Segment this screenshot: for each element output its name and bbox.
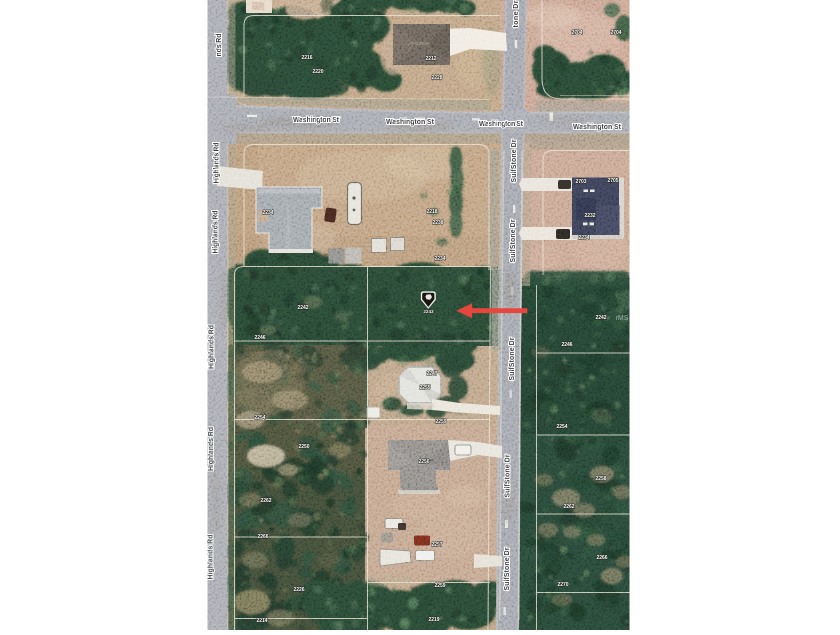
svg-text:2246: 2246 (254, 335, 265, 341)
svg-text:SulfStone Dr: SulfStone Dr (505, 454, 512, 497)
svg-text:2259: 2259 (435, 419, 446, 425)
svg-text:2250: 2250 (298, 444, 309, 450)
svg-text:tone Dr: tone Dr (513, 0, 520, 27)
svg-text:2242: 2242 (595, 315, 606, 321)
svg-text:Highlands Rd: Highlands Rd (208, 535, 215, 580)
svg-text:2262: 2262 (563, 504, 574, 510)
svg-text:2216: 2216 (301, 55, 312, 61)
svg-text:Washington St: Washington St (573, 124, 622, 131)
svg-text:2255: 2255 (419, 385, 430, 391)
svg-text:2246: 2246 (561, 342, 572, 348)
svg-text:2218: 2218 (426, 209, 437, 215)
svg-text:2212: 2212 (425, 56, 436, 62)
svg-text:2704: 2704 (571, 30, 582, 36)
svg-text:2234: 2234 (578, 235, 589, 241)
svg-text:SulfStone Dr: SulfStone Dr (509, 337, 516, 380)
svg-text:nds Rd: nds Rd (216, 34, 223, 57)
svg-text:2234: 2234 (434, 256, 445, 262)
svg-text:2254: 2254 (254, 415, 265, 421)
svg-text:2228: 2228 (431, 75, 442, 81)
svg-text:Washington St: Washington St (479, 121, 524, 128)
svg-text:2266: 2266 (596, 555, 607, 561)
svg-text:2270: 2270 (557, 582, 568, 588)
svg-text:2254: 2254 (556, 424, 567, 430)
svg-text:2259: 2259 (434, 583, 445, 589)
svg-text:Highlands Rd: Highlands Rd (208, 427, 215, 471)
svg-text:2258: 2258 (595, 476, 606, 482)
svg-text:2705: 2705 (607, 178, 618, 184)
svg-text:2226: 2226 (293, 587, 304, 593)
svg-text:2243: 2243 (423, 309, 434, 314)
svg-text:rMS: rMS (616, 315, 629, 322)
svg-text:2262: 2262 (260, 498, 271, 504)
svg-text:SulfStone Dr: SulfStone Dr (511, 139, 518, 182)
svg-text:2234: 2234 (262, 210, 273, 216)
svg-text:Highlands Rd: Highlands Rd (214, 143, 221, 184)
svg-text:2266: 2266 (257, 534, 268, 540)
svg-text:Washington St: Washington St (293, 117, 340, 124)
svg-text:Highlands Rd: Highlands Rd (209, 325, 216, 369)
svg-text:2238: 2238 (432, 220, 443, 226)
svg-text:2704: 2704 (610, 30, 621, 36)
svg-text:SulfStone Dr: SulfStone Dr (510, 219, 517, 262)
svg-text:2232: 2232 (584, 213, 595, 219)
svg-text:2214: 2214 (256, 618, 267, 624)
svg-text:2242: 2242 (297, 305, 308, 311)
svg-text:2220: 2220 (312, 69, 323, 75)
svg-text:2703: 2703 (575, 179, 586, 185)
svg-text:2247: 2247 (426, 371, 437, 377)
svg-text:2257: 2257 (431, 542, 442, 548)
svg-text:2256: 2256 (418, 459, 429, 465)
svg-text:SulfStone Dr: SulfStone Dr (504, 547, 511, 590)
svg-text:Washington St: Washington St (386, 119, 435, 126)
svg-text:2219: 2219 (428, 617, 439, 623)
svg-text:Highlands Rd: Highlands Rd (213, 211, 220, 254)
